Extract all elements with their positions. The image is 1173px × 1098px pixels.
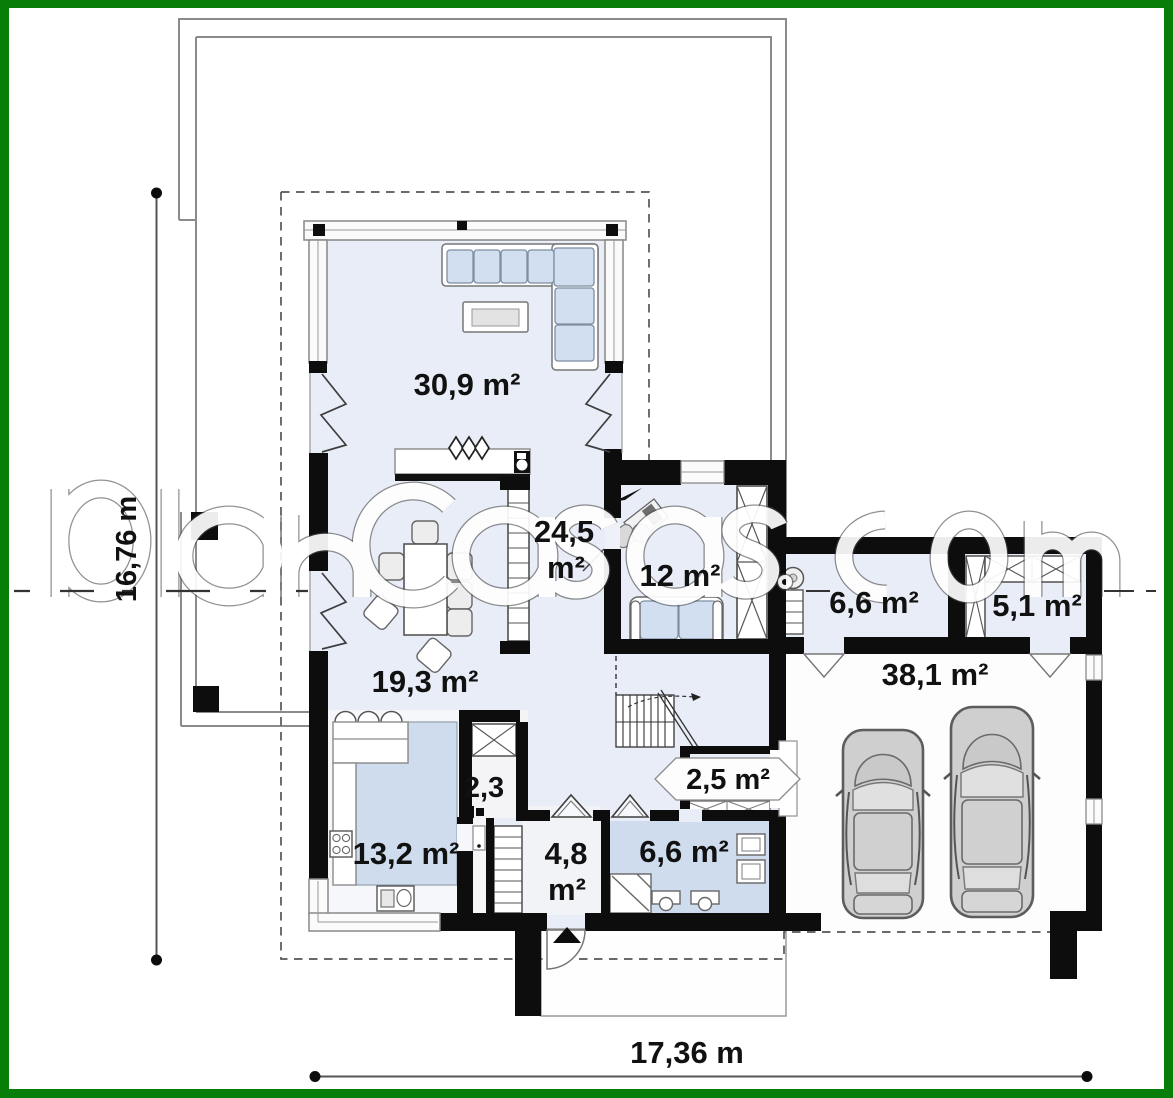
svg-text:6,6 m²: 6,6 m²: [829, 585, 919, 620]
svg-text:6,6 m²: 6,6 m²: [639, 834, 729, 869]
svg-text:30,9 m²: 30,9 m²: [414, 367, 521, 402]
svg-text:4,8: 4,8: [544, 836, 587, 871]
svg-text:13,2 m²: 13,2 m²: [353, 836, 460, 871]
svg-text:16,76 m: 16,76 m: [111, 496, 143, 602]
svg-text:5,1 m²: 5,1 m²: [992, 588, 1082, 623]
svg-text:38,1 m²: 38,1 m²: [882, 657, 989, 692]
svg-text:24,5: 24,5: [534, 514, 594, 549]
svg-text:17,36 m: 17,36 m: [630, 1035, 744, 1070]
svg-text:2,5 m²: 2,5 m²: [686, 764, 770, 796]
svg-text:m²: m²: [548, 872, 586, 907]
svg-text:19,3 m²: 19,3 m²: [372, 664, 479, 699]
svg-text:2,3: 2,3: [464, 772, 504, 804]
svg-text:12 m²: 12 m²: [640, 558, 721, 593]
svg-text:m²: m²: [547, 550, 585, 585]
